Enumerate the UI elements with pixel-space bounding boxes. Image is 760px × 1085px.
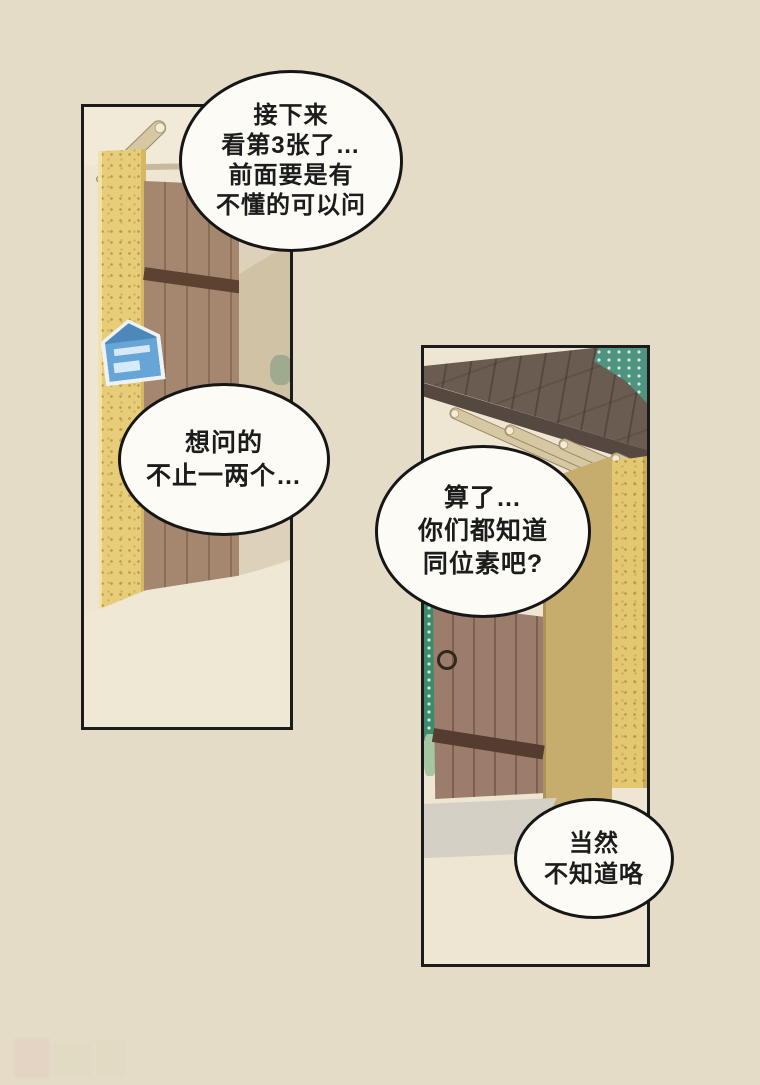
speech-bubble-1: 接下来 看第3张了… 前面要是有 不懂的可以问: [179, 70, 403, 252]
address-plaque: [98, 316, 165, 387]
bubble-1-line-1: 接下来: [216, 101, 366, 131]
bubble-4-line-2: 不知道咯: [544, 859, 644, 890]
watermark-fragment: [96, 1040, 126, 1078]
plaque-text-row: [114, 345, 151, 356]
speech-bubble-4: 当然 不知道咯: [514, 798, 674, 919]
bubble-2-line-2: 不止一两个…: [146, 460, 302, 493]
watermark-fragment: [14, 1038, 50, 1078]
foliage-glimpse: [270, 355, 292, 385]
plaque-face: [103, 320, 161, 382]
bubble-1-line-3: 前面要是有: [216, 161, 366, 191]
bubble-1-line-2: 看第3张了…: [216, 131, 366, 161]
rafter-end-cap: [504, 425, 516, 437]
bubble-2-line-1: 想问的: [146, 427, 302, 460]
bubble-3-line-1: 算了…: [418, 482, 548, 515]
bubble-3-line-3: 同位素吧?: [418, 548, 548, 581]
watermark-fragment: [52, 1042, 92, 1078]
rafter-end-cap: [449, 408, 461, 420]
speech-bubble-3: 算了… 你们都知道 同位素吧?: [375, 445, 591, 618]
bubble-4-line-1: 当然: [544, 828, 644, 859]
bubble-3-line-2: 你们都知道: [418, 515, 548, 548]
wooden-pillar-right: [612, 456, 647, 788]
plaque-number-row: [113, 360, 140, 373]
wooden-door-right: [433, 603, 543, 799]
rafter-end-cap: [558, 439, 570, 451]
bubble-1-line-4: 不懂的可以问: [216, 191, 366, 221]
comic-page: 接下来 看第3张了… 前面要是有 不懂的可以问 想问的 不止一两个… 算了… 你…: [0, 0, 760, 1085]
door-knocker-ring: [437, 650, 457, 670]
speech-bubble-2: 想问的 不止一两个…: [118, 383, 330, 536]
